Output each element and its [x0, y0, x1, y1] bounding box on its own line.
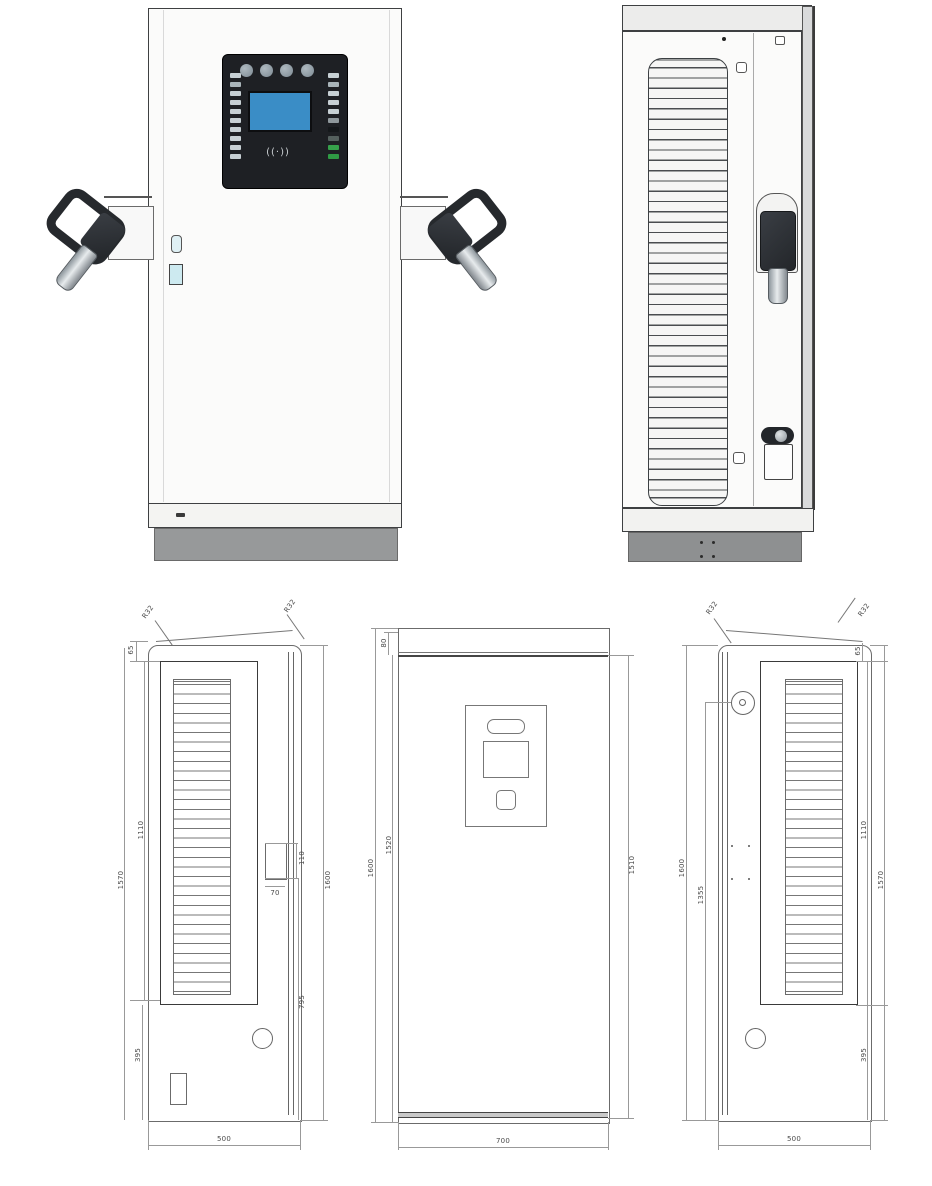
dim-full-height: 1600: [678, 859, 686, 878]
side-door-seam: [753, 33, 754, 506]
panel-indicator-left-4: [230, 100, 241, 105]
louver-grille: [173, 679, 231, 995]
gun-bracket-right-line: [400, 196, 448, 198]
top-band-heavy: [398, 655, 608, 657]
gun-bracket-left-line: [104, 196, 152, 198]
dim-louver-height: 1110: [860, 821, 868, 840]
door-edge-line: [293, 652, 294, 1115]
front-plinth: [154, 528, 398, 561]
door-edge-line: [288, 652, 289, 1115]
body-outline: [398, 628, 610, 1124]
panel-button-3: [280, 64, 293, 77]
panel-indicator-right-2: [328, 82, 339, 87]
door-connector: [171, 235, 182, 253]
panel-indicator-right-4: [328, 100, 339, 105]
vent-slot: [775, 36, 785, 45]
panel-indicator-left-1: [230, 73, 241, 78]
cable-entry-cutout: [170, 1073, 187, 1105]
plinth-bolt: [712, 555, 715, 558]
panel-indicator-left-8: [230, 136, 241, 141]
door-seam-right: [389, 10, 390, 502]
top-slant-line: [726, 630, 863, 642]
plinth-bolt: [700, 541, 703, 544]
dim-top-inset: 65: [127, 645, 135, 654]
base-strip: [398, 1112, 608, 1118]
card-slot: [487, 719, 525, 734]
screw-dot: [731, 845, 733, 847]
hinge-center-dot: [739, 699, 746, 706]
panel-indicator-right-10: [328, 154, 339, 159]
dim-overall-height: 1570: [877, 871, 885, 890]
dim-width: 700: [496, 1137, 510, 1145]
side-kick-strip: [622, 508, 814, 532]
panel-indicator-right-9: [328, 145, 339, 150]
lcd-screen: [248, 91, 312, 132]
dim-full-height: 1600: [367, 859, 375, 878]
dim-overall-height: 1570: [117, 871, 125, 890]
panel-indicator-right-5: [328, 109, 339, 114]
panel-indicator-left-10: [230, 154, 241, 159]
side-plinth: [628, 532, 802, 562]
led-column-right: [327, 69, 339, 163]
panel-indicator-right-3: [328, 91, 339, 96]
dim-hinge-span: 1355: [697, 886, 705, 905]
screw-hole-bottom: [733, 452, 745, 464]
louver-grille: [785, 679, 843, 995]
panel-button-2: [260, 64, 273, 77]
screw-hole-top: [736, 62, 747, 73]
cutout-detail: [265, 843, 287, 880]
dim-corner-radius: R32: [705, 600, 720, 616]
led-column-left: [229, 69, 241, 163]
screw-dot: [748, 878, 750, 880]
plinth-bolt: [700, 555, 703, 558]
panel-indicator-left-3: [230, 91, 241, 96]
cable-gland-circle: [252, 1028, 273, 1049]
side-ventilation-louver: [648, 58, 728, 506]
panel-indicator-left-5: [230, 109, 241, 114]
dim-full-height: 1600: [324, 871, 332, 890]
dim-depth: 500: [217, 1135, 231, 1143]
dim-base-height: 395: [134, 1048, 142, 1062]
dim-corner-radius: R32: [283, 598, 298, 614]
door-latch-plate: [764, 444, 793, 480]
door-edge-line: [722, 652, 723, 1115]
brand-logo: [176, 513, 185, 517]
vent-dot: [722, 37, 726, 41]
dim-cutout-height: 110: [298, 851, 306, 865]
dim-top-inset: 65: [854, 646, 862, 655]
cable-gland-circle: [745, 1028, 766, 1049]
plinth-bolt: [712, 541, 715, 544]
dim-door-height: 1520: [385, 836, 393, 855]
door-switch: [169, 264, 183, 285]
panel-indicator-left-6: [230, 118, 241, 123]
panel-button-1: [240, 64, 253, 77]
dim-depth: 500: [787, 1135, 801, 1143]
panel-indicator-right-8: [328, 136, 339, 141]
top-band-line: [398, 652, 608, 653]
top-slant-line: [156, 630, 293, 642]
door-edge-line: [727, 652, 728, 1115]
dim-corner-radius: R32: [857, 602, 872, 618]
screw-dot: [731, 878, 733, 880]
dim-side-height: 1510: [628, 856, 636, 875]
panel-indicator-right-6: [328, 118, 339, 123]
door-latch-knob: [775, 430, 787, 442]
dim-base-height: 395: [860, 1048, 868, 1062]
holstered-gun-body: [760, 211, 796, 271]
side-front-edge-dark: [813, 6, 815, 510]
rfid-reader: ((·)): [247, 147, 309, 158]
panel-indicator-left-9: [230, 145, 241, 150]
side-top-cap: [622, 5, 812, 31]
dim-corner-radius: R32: [141, 604, 156, 620]
charging-gun-left: [10, 178, 157, 326]
control-panel: ((·)): [222, 54, 348, 189]
dim-louver-height: 1110: [137, 821, 145, 840]
dim-top-panel: 80: [380, 638, 388, 647]
panel-button-4: [301, 64, 314, 77]
gun-barrel: [53, 243, 98, 293]
charger-technical-sheet: ((·)): [0, 0, 932, 1186]
dim-lower-section: 795: [298, 995, 306, 1009]
charging-gun-right: [396, 178, 543, 326]
side-front-edge-strip: [802, 6, 813, 510]
panel-indicator-right-1: [328, 73, 339, 78]
panel-indicator-left-7: [230, 127, 241, 132]
button-outline: [496, 790, 516, 810]
dim-cutout-width: 70: [270, 889, 279, 897]
door-seam-left: [163, 10, 164, 502]
holstered-gun-barrel: [768, 268, 788, 304]
front-kick-strip: [148, 503, 402, 528]
screen-outline: [483, 741, 529, 778]
panel-indicator-left-2: [230, 82, 241, 87]
screw-dot: [748, 845, 750, 847]
panel-indicator-right-7: [328, 127, 339, 132]
r32-leader-right: [838, 598, 856, 623]
r32-leader-right: [287, 614, 305, 639]
